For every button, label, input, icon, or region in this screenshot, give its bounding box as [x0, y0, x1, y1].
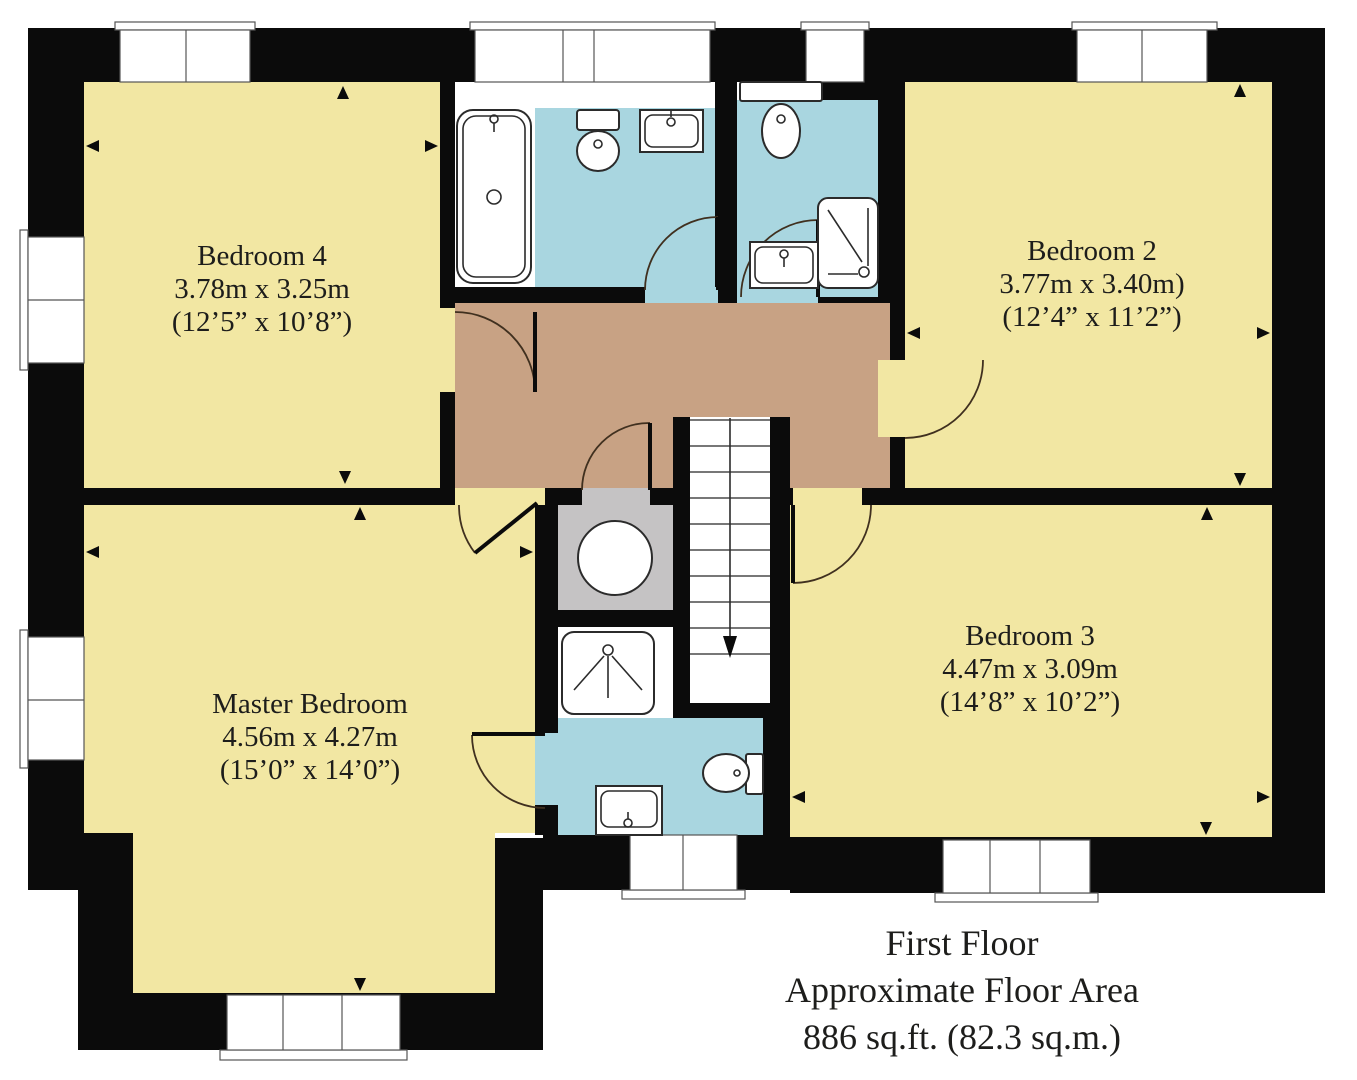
toilet-icon — [577, 110, 619, 171]
bedroom-2-name: Bedroom 2 — [1027, 235, 1157, 267]
shower-tray-icon — [562, 632, 654, 714]
bedroom-3-name: Bedroom 3 — [965, 620, 1095, 652]
bedroom-4-left-window — [20, 230, 84, 370]
master-bedroom-name: Master Bedroom — [212, 688, 408, 720]
floor-area-label: Approximate Floor Area — [785, 970, 1139, 1010]
sink-icon — [750, 242, 818, 288]
master-bedroom-imperial: (15’0” x 14’0”) — [220, 754, 400, 786]
landing-floor — [455, 303, 890, 417]
sink-icon — [596, 786, 662, 835]
bedroom-2-metric: 3.77m x 3.40m) — [999, 268, 1184, 300]
bedroom-4-imperial: (12’5” x 10’8”) — [172, 306, 352, 338]
shower-cubicle-icon — [818, 198, 878, 288]
shower-room-top-window — [801, 22, 869, 82]
footer: First Floor Approximate Floor Area 886 s… — [785, 923, 1139, 1057]
sink-icon — [640, 110, 703, 152]
bedroom-2-imperial: (12’4” x 11’2”) — [1002, 301, 1181, 333]
floorplan: Bedroom 4 3.78m x 3.25m (12’5” x 10’8”) … — [0, 0, 1357, 1080]
master-bedroom-metric: 4.56m x 4.27m — [222, 721, 398, 753]
master-left-window — [20, 630, 84, 768]
hot-water-cylinder-icon — [578, 521, 652, 595]
bedroom-3-bottom-window — [935, 840, 1098, 902]
bedroom-2-top-window — [1072, 22, 1217, 82]
master-bay-window — [220, 995, 407, 1060]
bedroom-3-imperial: (14’8” x 10’2”) — [940, 686, 1120, 718]
floorplan-canvas: Bedroom 4 3.78m x 3.25m (12’5” x 10’8”) … — [0, 0, 1357, 1080]
floor-area-value: 886 sq.ft. (82.3 sq.m.) — [803, 1017, 1121, 1057]
bedroom-4-metric: 3.78m x 3.25m — [174, 273, 350, 305]
bedroom-3-metric: 4.47m x 3.09m — [942, 653, 1118, 685]
bedroom-4-top-window — [115, 22, 255, 82]
ensuite-bottom-window — [622, 835, 745, 899]
bathroom-window-recess — [455, 82, 715, 108]
bathtub-icon — [457, 110, 531, 283]
master-bedroom-floor-lower — [133, 833, 495, 993]
toilet-icon — [703, 754, 763, 794]
bedroom-4-name: Bedroom 4 — [197, 240, 327, 272]
floor-title: First Floor — [885, 923, 1038, 963]
landing-floor-left-arm — [455, 417, 673, 488]
landing-floor-right-arm — [790, 417, 890, 488]
bathroom-top-window — [470, 22, 715, 82]
